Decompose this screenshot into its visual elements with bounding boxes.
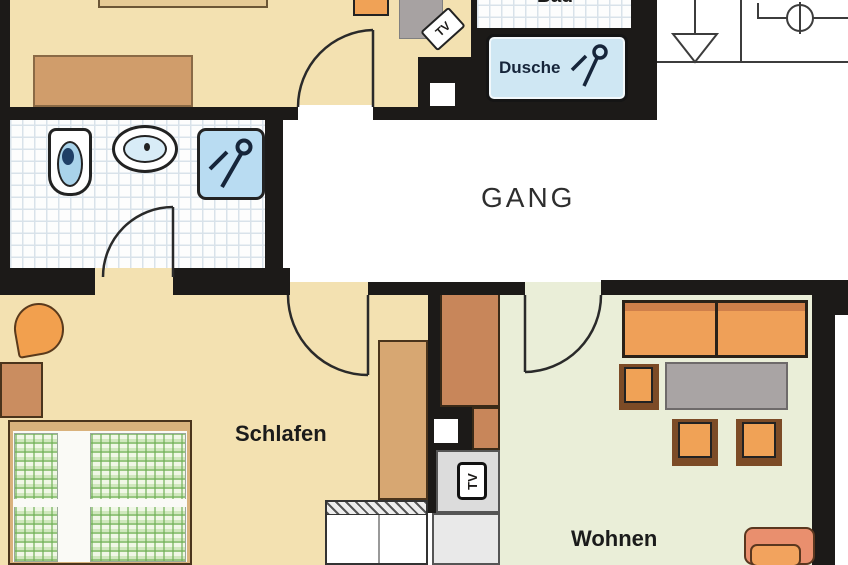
shower-icon: [200, 131, 262, 197]
cabinet-hatch: [327, 502, 426, 515]
cabinet-divider: [378, 515, 380, 563]
wall: [10, 107, 298, 120]
room-label-living: Wohnen: [571, 526, 657, 552]
bed-seam: [14, 499, 186, 507]
shower-cabin: Dusche: [486, 34, 628, 102]
armchair: [624, 367, 653, 403]
wall: [0, 0, 10, 283]
room-label-bath: Bad: [520, 0, 590, 8]
door-opening-bedroom: [290, 282, 368, 295]
sofa-cushion-divider: [715, 303, 718, 355]
tv-label: TV: [433, 19, 454, 40]
wall: [631, 0, 657, 28]
door-opening-top-room: [298, 105, 373, 120]
sink-basin: [123, 135, 167, 163]
toilet-detail: [62, 148, 74, 165]
wall: [368, 282, 525, 295]
room-label-corridor: GANG: [481, 182, 575, 214]
bed-mattress: [13, 431, 187, 562]
duvet-left: [14, 433, 58, 562]
door-opening-bathroom: [95, 268, 173, 295]
wall: [265, 107, 283, 295]
toilet-bowl: [57, 141, 83, 187]
door-opening-living: [525, 282, 601, 295]
shower-tray: [197, 128, 265, 200]
chair: [353, 0, 389, 16]
floor-plan: TV Dusche: [0, 0, 848, 565]
wall: [812, 295, 835, 565]
tv-label: TV: [465, 473, 480, 490]
tv-symbol-box: TV: [457, 462, 487, 500]
table: [98, 0, 268, 8]
tv-unit: TV: [436, 450, 500, 513]
sideboard: [33, 55, 193, 107]
wall: [0, 268, 95, 295]
wall-niche: [434, 419, 458, 443]
shower-cabin-label: Dusche: [499, 58, 560, 78]
built-in-cabinet: [325, 500, 428, 565]
sofa: [622, 300, 808, 358]
wall: [283, 282, 290, 295]
reference-line: [758, 3, 848, 18]
shower-icon: [566, 42, 612, 94]
sink: [112, 125, 178, 173]
lounge-chair: [744, 527, 815, 565]
sideboard-lower: [432, 513, 500, 565]
sink-drain: [144, 143, 150, 151]
wardrobe-bedroom: [378, 340, 428, 500]
wall: [601, 280, 848, 295]
wall: [835, 280, 848, 315]
room-label-bedroom: Schlafen: [235, 421, 327, 447]
nightstand: [0, 362, 43, 418]
lounge-chair-seat: [750, 544, 801, 565]
wall-niche: [430, 83, 455, 106]
stool: [742, 422, 776, 458]
coffee-table: [665, 362, 788, 410]
stool: [678, 422, 712, 458]
stair-direction-arrow: [673, 34, 717, 62]
column-symbol: [787, 5, 813, 31]
double-bed: [8, 420, 192, 565]
duvet-right: [90, 433, 186, 562]
toilet: [48, 128, 92, 196]
wardrobe-living-lower: [472, 407, 500, 450]
wardrobe-living: [440, 295, 500, 407]
